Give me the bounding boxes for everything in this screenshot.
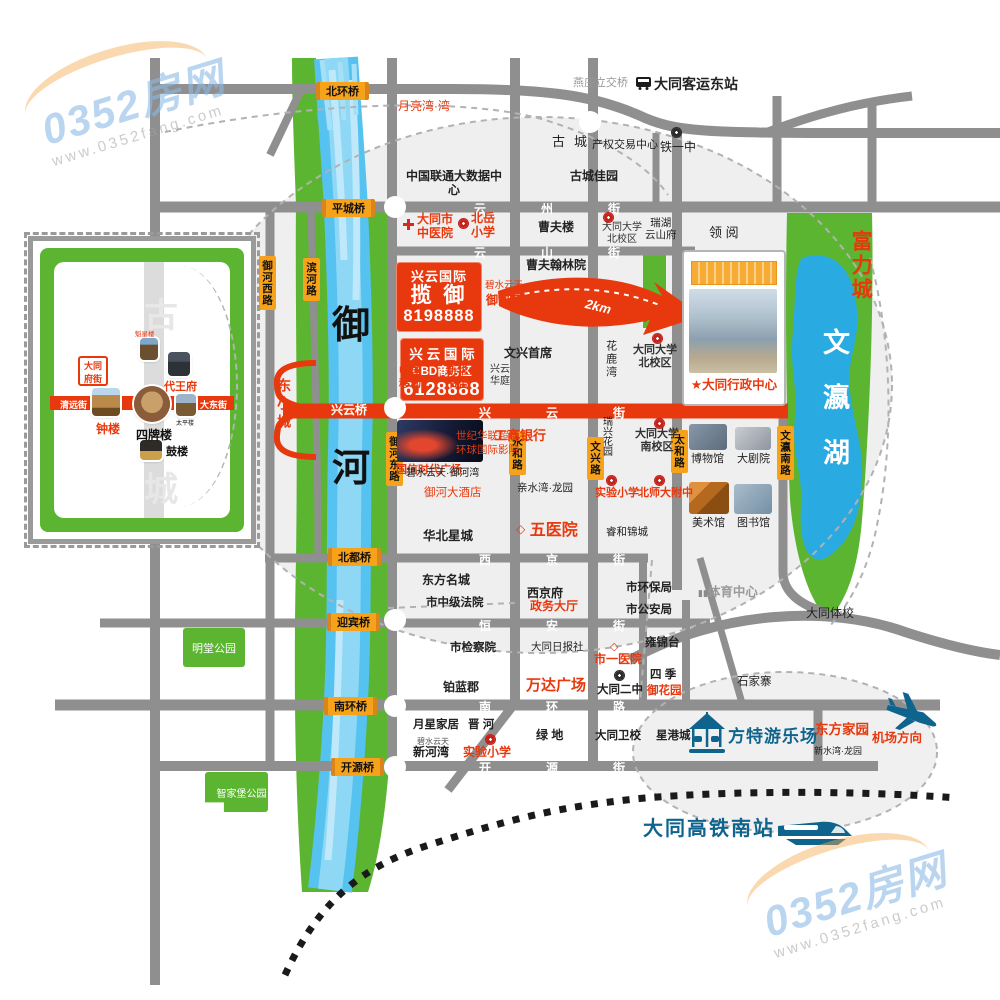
wenxingshouxi-label: 文兴首席 <box>504 347 552 361</box>
yidong-label: 中国 移动 <box>399 365 421 390</box>
caofulou-label: 曹夫楼 <box>538 221 574 235</box>
gonganju-label: 市公安局 <box>626 604 672 617</box>
chanquan-label: 产权交易中心 <box>592 139 658 152</box>
meishuguan-photo <box>689 482 729 514</box>
fayuan-label: 市中级法院 <box>426 597 484 610</box>
old-town-inset-map: 古 城 清远街 大东街 魁星楼 大同 府街 代王府 钟楼 四牌楼 太平楼 鼓楼 <box>28 236 256 544</box>
daxue-nan-label: 大同大学 南校区 <box>635 428 679 453</box>
street-yunzhou: 云州街 <box>474 200 675 217</box>
daxue-bei2-label: 大同大学 北校区 <box>633 344 677 369</box>
xinshuiwan-label: 新水湾·龙园 <box>814 746 862 756</box>
bishuiyuhewan-label: 碧水云天·御河湾 <box>406 468 479 480</box>
tixiao-label: 大同体校 <box>806 607 854 621</box>
bowuguan-label: 博物馆 <box>691 453 724 466</box>
siji-label: 四 季 <box>650 669 676 682</box>
junction-circle <box>384 695 406 717</box>
lanyu-nearby-small: 碧水云天 <box>485 281 523 292</box>
wanda-label: 万达广场 <box>526 677 586 694</box>
ghost-char-bottom: 城 <box>144 462 178 511</box>
street-hengan: 恒安街 <box>479 617 680 634</box>
taipinglou-label: 太平楼 <box>176 418 194 427</box>
junction-circle <box>384 609 406 631</box>
bridge-nanhuan: 南环桥 <box>324 697 377 715</box>
lanyu-name: 揽 御 <box>396 285 482 307</box>
junction-circle <box>384 196 406 218</box>
vroad-binhe: 滨河路 <box>303 258 320 301</box>
fangte-label: 方特游乐场 <box>728 727 818 747</box>
bolanjun-label: 铂蓝郡 <box>443 681 479 695</box>
bridge-xingyun: 兴云桥 <box>331 404 367 418</box>
tushuguan-label: 图书馆 <box>737 517 770 530</box>
liantong-label: 中国联通大数据中心 <box>404 170 504 198</box>
carousel-icon <box>688 712 726 756</box>
admin-center-panel: ★大同行政中心 <box>682 250 786 406</box>
wenyinghu-label: 文瀛湖 <box>818 328 849 488</box>
bridge-pingcheng: 平城桥 <box>322 199 375 217</box>
street-xijing: 西京街 <box>479 551 680 568</box>
yongjintai-label: 雍锦台 <box>645 637 680 650</box>
qinshuiwan-label: 亲水湾·龙园 <box>517 482 573 494</box>
weixiao-label: 大同卫校 <box>595 730 641 743</box>
lingyue-label: 领 阅 <box>709 226 739 241</box>
tiyu-label: ▮▮体育中心 <box>698 585 758 599</box>
yuexing-label: 月星家居 <box>413 719 459 732</box>
datong-location-map: 北环桥 平城桥 北都桥 迎宾桥 南环桥 开源桥 兴云桥 云州街 云山街 兴云街 … <box>0 0 1000 1000</box>
gulou-label: 鼓楼 <box>166 443 188 459</box>
wuyiyuan-label: ◇ 五医院 <box>516 522 578 540</box>
dadongjie-label: 大东街 <box>200 398 227 411</box>
yuhe-river-label-1: 御 <box>332 305 370 349</box>
school-icon <box>604 213 613 222</box>
ribaoshe-label: 大同日报社 <box>531 641 584 653</box>
zhonglou-label: 钟楼 <box>96 420 120 437</box>
huabei-label: 华北星城 <box>423 529 473 543</box>
bridge-kaiyuan: 开源桥 <box>331 758 384 776</box>
admin-building-strip <box>691 261 777 285</box>
dajuyuan-photo <box>735 427 771 450</box>
qingyuanjie-label: 清远街 <box>60 398 87 411</box>
zhongyiyuan-label: 大同市 中医院 <box>417 213 453 241</box>
school-icon <box>607 476 616 485</box>
bridge-beihuan: 北环桥 <box>316 82 369 100</box>
huanbaoju-label: 市环保局 <box>626 582 672 595</box>
train-icon <box>776 806 856 850</box>
street-nanhuan: 南环路 <box>479 698 680 715</box>
bowuguan-photo <box>689 424 727 450</box>
beiyue-label: 北岳 小学 <box>471 212 495 240</box>
ruixing-label: 瑞兴花园 <box>600 416 612 474</box>
dongfangjiayuan-label: 东方家园 <box>815 722 869 738</box>
junction-circle <box>579 111 601 133</box>
kuixinglou-label: 魁星楼 <box>135 328 155 338</box>
lanyu-brand: 兴云国际 <box>396 266 482 285</box>
keyundong-label: 大同客运东站 <box>654 76 738 92</box>
vroad-wenyingnan: 文瀛南路 <box>777 426 794 480</box>
zhengwu-label: 政务大厅 <box>530 600 578 614</box>
ruihu-label: 瑞湖 云山府 <box>645 217 677 241</box>
sipailou-label: 四牌楼 <box>136 426 172 443</box>
junction-circle <box>384 756 406 778</box>
caofuhanlin-label: 曹夫翰林院 <box>526 259 586 273</box>
tushuguan-photo <box>734 484 772 514</box>
school-icon <box>653 334 662 343</box>
dongfangmingcheng-label: 东方名城 <box>422 574 470 588</box>
tieyizhong-label: 铁一中 <box>660 141 696 155</box>
bridge-yingbin: 迎宾桥 <box>327 613 380 631</box>
huating-label: 兴云 华庭 <box>490 364 510 387</box>
lvdi-label: 绿 地 <box>536 729 563 743</box>
daxue-bei-label: 大同大学 北校区 <box>602 222 642 245</box>
diamond-icon: ◇ <box>516 522 525 536</box>
dongxiaocheng-label: 东小城 <box>276 378 292 442</box>
dajuyuan-label: 大剧院 <box>737 453 770 466</box>
kuixinglou-photo <box>140 338 158 360</box>
guchengjiayuan-label: 古城佳园 <box>560 170 628 184</box>
bridge-beidu: 北都桥 <box>328 548 381 566</box>
school-icon <box>655 419 664 428</box>
street-xingyun: 兴云街 <box>479 404 680 421</box>
lanyu-project-box: 兴云国际 揽 御 8198888 <box>396 262 482 332</box>
xinhua-label: 新华 书店 <box>446 365 468 390</box>
yuhuayuan-label: 御花园 <box>647 685 682 698</box>
railway-line <box>285 792 958 975</box>
ruihejincheng-label: 睿和锦城 <box>606 526 648 538</box>
admin-building-photo <box>689 289 777 373</box>
building-icon: ▮▮ <box>698 588 708 598</box>
cbd-brand: 兴 云 国 际 <box>400 343 484 363</box>
shiyan2-label: 实验小学 <box>463 746 511 760</box>
xinggang-label: 星港城 <box>656 730 691 743</box>
erzhong-label: 大同二中 <box>597 684 643 697</box>
lanyu-nearby-big: 御河苑 <box>486 294 522 308</box>
shijiazhai-label: 石家寨 <box>737 676 772 689</box>
hsr-label: 大同高铁南站 <box>643 818 775 841</box>
taipinglou-photo <box>176 394 196 416</box>
yanzhuang-label: 燕庄立交桥 <box>573 77 628 90</box>
jianchayuan-label: 市检察院 <box>450 642 496 655</box>
fulicheng-label: 富力城 <box>848 230 872 310</box>
hospital-cross-icon <box>403 219 414 230</box>
street-kaiyuan: 开源街 <box>479 759 680 776</box>
daiwangfu-label: 代王府 <box>164 378 197 394</box>
zhonglou-photo <box>92 388 120 416</box>
school-icon <box>486 735 495 744</box>
school-icon <box>655 476 664 485</box>
admin-center-label: ★大同行政中心 <box>687 378 781 392</box>
xinhewan-label: 新河湾 <box>413 746 449 760</box>
hualuwan-label: 花鹿湾 <box>604 340 617 398</box>
shiyiyiyuan-label: 市一医院 <box>594 653 642 667</box>
gulou-photo <box>140 440 162 460</box>
school-icon <box>615 671 624 680</box>
daiwangfu-photo <box>168 352 190 376</box>
airplane-icon <box>884 692 940 738</box>
yuhedajiudian-label: 御河大酒店 <box>424 487 482 500</box>
school-icon <box>672 128 681 137</box>
yueliangwan-label: 月亮湾·湾 <box>398 100 450 114</box>
gucheng-label: 古城 <box>552 135 596 150</box>
vroad-yuhexi: 御河西路 <box>259 256 276 310</box>
jinhe-label: 晋 河 <box>468 719 494 732</box>
dufujie-stamp: 大同 府街 <box>78 356 108 386</box>
shiyan1-label: 实验小学 <box>595 487 639 500</box>
yuhe-river-label-2: 河 <box>332 448 370 492</box>
meishuguan-label: 美术馆 <box>692 517 725 530</box>
lanyu-phone: 8198888 <box>396 307 482 326</box>
gongshang-label: 工商银行 <box>494 429 546 444</box>
beishida-label: 北师大附中 <box>638 487 693 500</box>
school-icon <box>459 219 468 228</box>
